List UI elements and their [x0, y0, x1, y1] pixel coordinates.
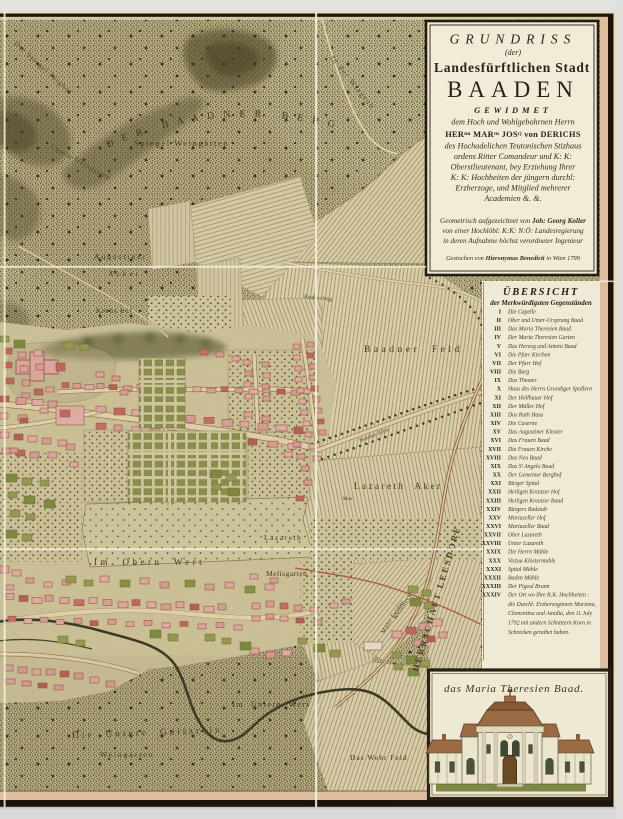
svg-text:Schrecken gerathet haben.: Schrecken gerathet haben. [508, 630, 569, 636]
svg-text:BAADEN: BAADEN [447, 77, 579, 102]
svg-text:Haus des Herrn Grundiger Spall: Haus des Herrn Grundiger Spallern [507, 387, 592, 393]
svg-text:Der Ort wo Ihre K.K. Hochheite: Der Ort wo Ihre K.K. Hochheiten : [507, 593, 589, 599]
svg-text:XI: XI [495, 395, 502, 401]
svg-text:VIII: VIII [490, 370, 502, 376]
svg-text:1792 mit andern Schnittern Kor: 1792 mit andern Schnittern Korn in [508, 621, 591, 627]
svg-text:Bürger Spital: Bürger Spital [508, 481, 540, 487]
svg-text:Die Burg: Die Burg [507, 370, 529, 376]
svg-text:dem Hoch und Wohlgebohrnen Her: dem Hoch und Wohlgebohrnen Herrn [451, 118, 574, 127]
svg-text:Mariazeller Baad: Mariazeller Baad [507, 524, 549, 530]
svg-text:Erzherzoge, und Mitglied mehre: Erzherzoge, und Mitglied mehrerer [454, 184, 571, 193]
svg-text:XXX: XXX [488, 558, 501, 564]
svg-text:II: II [496, 318, 501, 324]
svg-text:Clementina und Amalia, den 11: Clementina und Amalia, den 11 July [508, 611, 593, 617]
svg-text:Spital Mühle: Spital Mühle [508, 567, 538, 573]
svg-text:XXIV: XXIV [486, 507, 502, 513]
svg-text:Der Gemeiner Berghof: Der Gemeiner Berghof [507, 472, 563, 479]
svg-text:HERⁿⁿ MARᵗⁿ JOSᵗʲ von DERICHS: HERⁿⁿ MARᵗⁿ JOSᵗʲ von DERICHS [445, 130, 581, 139]
svg-text:der Merkwürdigsten Gegenstände: der Merkwürdigsten Gegenständen [490, 299, 592, 307]
svg-text:Der Pigeul Brunn: Der Pigeul Brunn [507, 584, 550, 590]
svg-text:des Hochadelichen Teutonischen: des Hochadelichen Teutonischen Stizhaus [445, 142, 582, 151]
svg-text:Das Augustiner Kloster: Das Augustiner Kloster [507, 430, 563, 436]
svg-text:XV: XV [493, 430, 502, 436]
svg-text:Das Maria Theresien Baad: Das Maria Theresien Baad [507, 327, 571, 333]
svg-text:Das Herzog und Antoni Baad: Das Herzog und Antoni Baad [507, 344, 577, 350]
svg-text:K: K: Hochheiten der jüngern d: K: K: Hochheiten der jüngern durchl: [450, 173, 576, 182]
svg-text:XIV: XIV [490, 421, 501, 427]
svg-text:III: III [494, 327, 502, 333]
svg-text:Der Müller Hof: Der Müller Hof [507, 403, 546, 410]
svg-text:Unter Lazareth: Unter Lazareth [508, 541, 543, 547]
svg-text:GEWIDMET: GEWIDMET [474, 105, 552, 115]
svg-text:Ober Lazareth: Ober Lazareth [508, 533, 542, 539]
svg-text:Das Theater: Das Theater [507, 378, 538, 384]
svg-text:VI: VI [495, 352, 502, 358]
svg-text:Oberstlieutenant, bey Erziehun: Oberstlieutenant, bey Erziehung Ihrer [451, 163, 577, 172]
svg-text:XVIII: XVIII [486, 455, 502, 461]
svg-text:XVI: XVI [490, 438, 501, 444]
svg-text:Der Maria Theresien Garten: Der Maria Theresien Garten [507, 335, 575, 341]
svg-text:XIII: XIII [490, 413, 502, 419]
svg-text:XXXIV: XXXIV [482, 593, 502, 599]
svg-text:von einer Hochlöbl: K:K: N:Ö:: von einer Hochlöbl: K:K: N:Ö: Landesregi… [442, 226, 584, 235]
svg-text:ordens Ritter Comandeur und K:: ordens Ritter Comandeur und K: K: [454, 152, 572, 161]
svg-text:XIX: XIX [490, 464, 501, 470]
svg-text:XX: XX [493, 473, 502, 479]
svg-text:XXV: XXV [488, 515, 501, 521]
svg-text:in deren Aufnahme höchst veror: in deren Aufnahme höchst verordneter Ing… [443, 237, 583, 245]
svg-text:XXII: XXII [488, 490, 502, 496]
svg-text:XXXI: XXXI [486, 567, 502, 573]
svg-text:Der Pfarr Hof: Der Pfarr Hof [507, 360, 543, 367]
svg-text:XXI: XXI [490, 481, 501, 487]
svg-text:Geometrisch aufgezeichnet von: Geometrisch aufgezeichnet von Joh: Georg… [440, 217, 586, 225]
svg-text:das Maria Theresien Baad.: das Maria Theresien Baad. [444, 683, 584, 695]
svg-text:XXIII: XXIII [486, 498, 502, 504]
svg-text:die Durchl: Erzherzoginnen Mar: die Durchl: Erzherzoginnen Mariana, [508, 602, 597, 608]
svg-text:Der Hollhauer Hof: Der Hollhauer Hof [507, 394, 554, 401]
svg-text:Heiligen Kreutzer Hof: Heiligen Kreutzer Hof [507, 489, 561, 496]
svg-text:Ober und Unter-Ursprung Baad: Ober und Unter-Ursprung Baad [508, 318, 583, 324]
svg-text:Das Rath Haus: Das Rath Haus [507, 413, 544, 419]
svg-text:XVII: XVII [488, 447, 502, 453]
svg-text:ÜBERSICHT: ÜBERSICHT [503, 285, 579, 298]
svg-text:XXVIII: XXVIII [482, 541, 502, 547]
svg-text:XXXIII: XXXIII [482, 584, 502, 590]
svg-text:Mariazeller Hof: Mariazeller Hof [507, 514, 547, 521]
svg-text:Die Pfarr Kirchen: Die Pfarr Kirchen [507, 351, 550, 358]
svg-text:(der): (der) [505, 48, 521, 57]
svg-text:XII: XII [492, 404, 501, 410]
svg-text:XXIX: XXIX [486, 550, 502, 556]
svg-text:Academien &. &.: Academien &. &. [483, 194, 541, 203]
svg-text:Gestochen von Hieronymus Bened: Gestochen von Hieronymus Benedicti in Wi… [446, 255, 581, 262]
svg-text:Das Neu Baad: Das Neu Baad [507, 455, 542, 461]
svg-text:Die Caserne: Die Caserne [507, 421, 538, 427]
svg-text:Die Herrn Mühle: Die Herrn Mühle [507, 550, 549, 556]
svg-text:GRUNDRISS: GRUNDRISS [450, 32, 577, 47]
svg-text:Landesfürftlichen Stadt: Landesfürftlichen Stadt [434, 60, 590, 75]
svg-text:IV: IV [495, 335, 502, 341]
svg-text:Victua Klöstermuhle: Victua Klöstermuhle [508, 558, 556, 564]
svg-text:Das Frauen Baad: Das Frauen Baad [507, 438, 550, 444]
svg-text:Bürgers Badstub: Bürgers Badstub [508, 507, 547, 513]
svg-text:IX: IX [495, 378, 502, 384]
svg-text:VII: VII [492, 361, 501, 367]
svg-text:Heiligen Kreutzer Baad: Heiligen Kreutzer Baad [507, 498, 563, 504]
svg-text:Die Capelle: Die Capelle [507, 310, 536, 316]
svg-text:XXXII: XXXII [484, 576, 502, 582]
svg-text:XXVII: XXVII [484, 533, 502, 539]
svg-text:Das Sᵗ Angelo Baad: Das Sᵗ Angelo Baad [507, 464, 554, 470]
svg-text:XXVI: XXVI [486, 524, 502, 530]
svg-text:Baden Mühle: Baden Mühle [508, 576, 539, 582]
svg-text:Die Frauen Kirche: Die Frauen Kirche [507, 447, 552, 453]
